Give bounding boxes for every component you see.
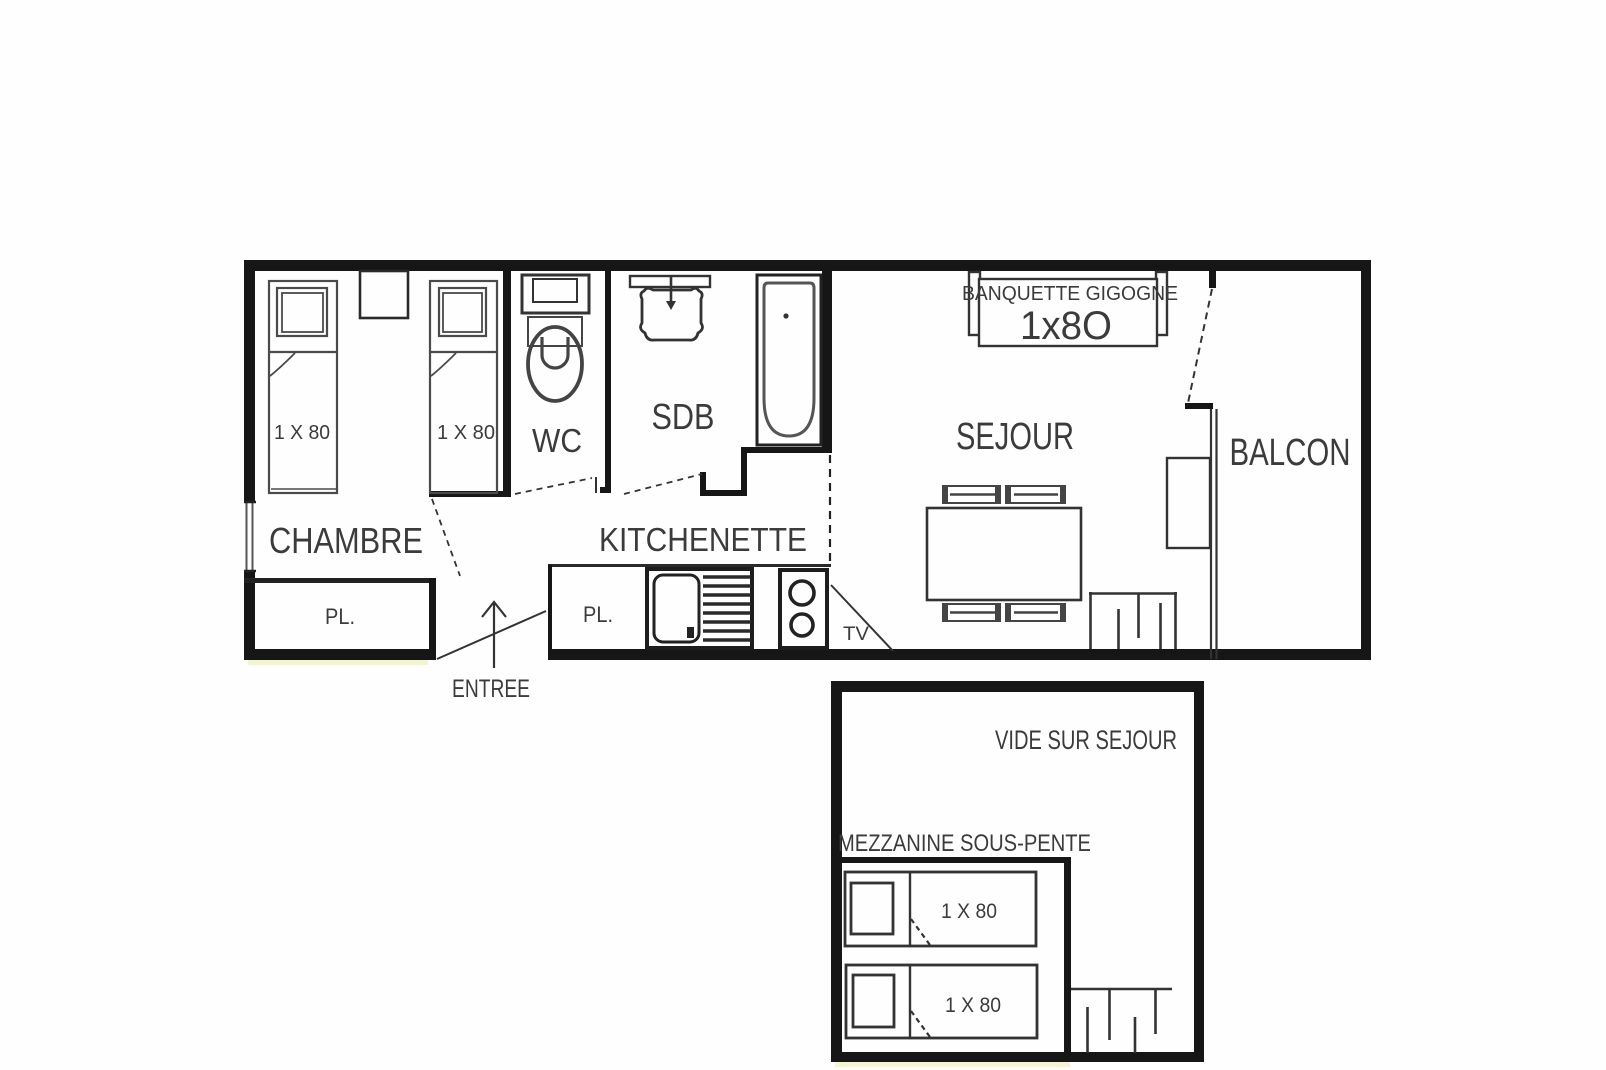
svg-text:ENTREE: ENTREE xyxy=(452,675,530,703)
svg-text:1 X 80: 1 X 80 xyxy=(437,422,495,444)
svg-text:PL.: PL. xyxy=(325,604,355,629)
svg-text:TV: TV xyxy=(843,624,869,645)
svg-text:SDB: SDB xyxy=(652,396,715,437)
svg-text:VIDE SUR SEJOUR: VIDE SUR SEJOUR xyxy=(995,725,1177,755)
svg-text:WC: WC xyxy=(532,422,582,459)
svg-text:1 X 80: 1 X 80 xyxy=(274,422,330,444)
svg-text:KITCHENETTE: KITCHENETTE xyxy=(599,521,807,558)
svg-text:SEJOUR: SEJOUR xyxy=(956,416,1074,458)
svg-text:BALCON: BALCON xyxy=(1230,432,1351,474)
svg-text:BANQUETTE GIGOGNE: BANQUETTE GIGOGNE xyxy=(962,283,1178,305)
svg-text:MEZZANINE SOUS-PENTE: MEZZANINE SOUS-PENTE xyxy=(838,830,1091,857)
svg-text:CHAMBRE: CHAMBRE xyxy=(269,520,423,561)
svg-text:1 X 80: 1 X 80 xyxy=(941,900,997,923)
svg-text:PL.: PL. xyxy=(583,602,613,627)
svg-text:1 X 80: 1 X 80 xyxy=(945,994,1001,1017)
svg-text:1x8O: 1x8O xyxy=(1020,304,1112,348)
